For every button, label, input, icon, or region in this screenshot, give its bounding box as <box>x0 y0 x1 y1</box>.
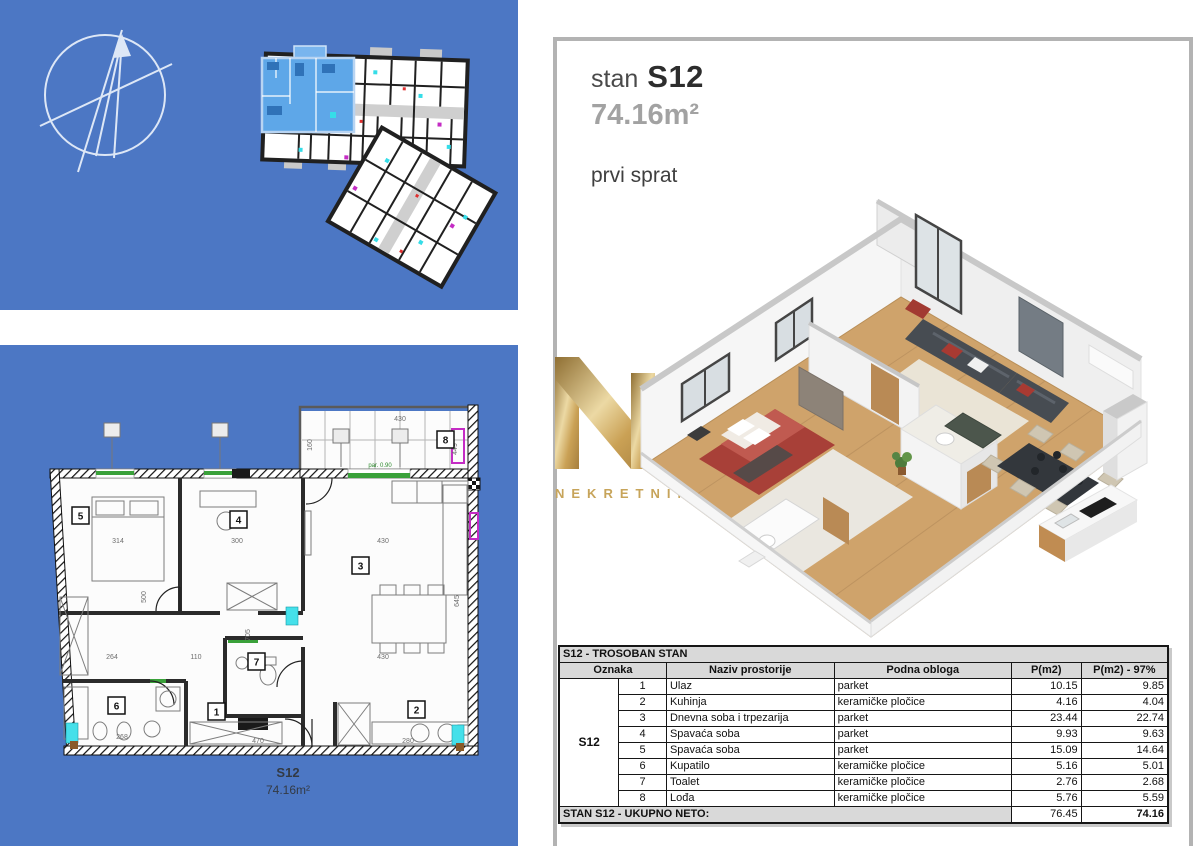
table-row: 4 Spavaća soba parket 9.93 9.63 <box>559 727 1168 743</box>
plan-interior <box>59 411 468 746</box>
cell-area97: 9.63 <box>1081 727 1168 743</box>
cell-area97: 22.74 <box>1081 711 1168 727</box>
cell-area: 2.76 <box>1011 775 1081 791</box>
footer-total: 76.45 <box>1011 807 1081 824</box>
detail-panel: stan S12 74.16m² prvi sprat NEKRETNINE <box>553 37 1193 846</box>
cell-num: 8 <box>619 791 667 807</box>
col-oznaka: Oznaka <box>559 663 666 679</box>
cell-area: 23.44 <box>1011 711 1081 727</box>
col-pm2: P(m2) <box>1011 663 1081 679</box>
cell-area97: 14.64 <box>1081 743 1168 759</box>
plan-caption-area: 74.16m² <box>266 783 310 797</box>
cell-num: 2 <box>619 695 667 711</box>
dimension-label: 300 <box>231 538 243 545</box>
dimension-label: 705 <box>245 629 252 641</box>
dimension-label: 264 <box>106 654 118 661</box>
cell-area97: 2.68 <box>1081 775 1168 791</box>
room-label: 8 <box>443 436 449 447</box>
unit-area: 74.16m² <box>591 99 704 132</box>
cell-name: Spavaća soba <box>666 743 834 759</box>
plan-caption-code: S12 <box>276 765 299 780</box>
room-label: 6 <box>114 702 120 713</box>
dimension-label: 110 <box>190 654 201 661</box>
dimension-label: 430 <box>377 538 389 545</box>
compass-icon <box>40 30 172 172</box>
cell-floor: parket <box>834 743 1011 759</box>
building-footprint <box>260 43 498 289</box>
site-plan-panel <box>0 0 518 310</box>
cell-name: Toalet <box>666 775 834 791</box>
dimension-label: 470 <box>252 738 264 745</box>
cell-floor: parket <box>834 711 1011 727</box>
room-label: 3 <box>358 562 364 573</box>
dimension-label: 268 <box>116 734 128 741</box>
page: 314 300 430 264 110 580 430 268 470 280 … <box>0 0 1200 846</box>
cell-area97: 5.59 <box>1081 791 1168 807</box>
dimension-label: 430 <box>377 654 389 661</box>
cell-area: 4.16 <box>1011 695 1081 711</box>
cell-name: Dnevna soba i trpezarija <box>666 711 834 727</box>
dimension-label: 500 <box>141 591 148 603</box>
table-row: 8 Lođa keramičke pločice 5.76 5.59 <box>559 791 1168 807</box>
room-label: 7 <box>254 658 260 669</box>
table-header-row: Oznaka Naziv prostorije Podna obloga P(m… <box>559 663 1168 679</box>
table-footer-row: STAN S12 - UKUPNO NETO: 76.45 74.16 <box>559 807 1168 824</box>
dimension-label: 645 <box>454 595 461 607</box>
footer-label: STAN S12 - UKUPNO NETO: <box>559 807 1011 824</box>
apartment-3d-render <box>565 167 1177 647</box>
cell-area97: 4.04 <box>1081 695 1168 711</box>
unit-title-prefix: stan <box>591 65 638 94</box>
parapet-label: par. 0.90 <box>368 463 392 469</box>
cell-num: 6 <box>619 759 667 775</box>
dimension-label: 314 <box>112 538 124 545</box>
cell-num: 3 <box>619 711 667 727</box>
cell-floor: keramičke pločice <box>834 695 1011 711</box>
cell-floor: keramičke pločice <box>834 791 1011 807</box>
cell-area: 15.09 <box>1011 743 1081 759</box>
cell-area97: 5.01 <box>1081 759 1168 775</box>
rooms-table: S12 - TROSOBAN STAN Oznaka Naziv prostor… <box>558 645 1169 824</box>
room-label: 1 <box>214 708 220 719</box>
cell-floor: keramičke pločice <box>834 775 1011 791</box>
group-label: S12 <box>559 679 619 807</box>
room-label: 2 <box>414 706 420 717</box>
table-row: 7 Toalet keramičke pločice 2.76 2.68 <box>559 775 1168 791</box>
cell-num: 1 <box>619 679 667 695</box>
table-row: 6 Kupatilo keramičke pločice 5.16 5.01 <box>559 759 1168 775</box>
cell-name: Kuhinja <box>666 695 834 711</box>
cell-num: 7 <box>619 775 667 791</box>
cell-name: Spavaća soba <box>666 727 834 743</box>
table-row: 3 Dnevna soba i trpezarija parket 23.44 … <box>559 711 1168 727</box>
table-title-row: S12 - TROSOBAN STAN <box>559 646 1168 663</box>
floor-plan-drawing: 314 300 430 264 110 580 430 268 470 280 … <box>0 345 518 846</box>
cell-area: 5.16 <box>1011 759 1081 775</box>
dimension-label: 160 <box>307 439 314 451</box>
unit-title-code: S12 <box>647 59 704 95</box>
cell-name: Lođa <box>666 791 834 807</box>
table-row: S12 1 Ulaz parket 10.15 9.85 <box>559 679 1168 695</box>
cell-floor: parket <box>834 679 1011 695</box>
floor-plan-panel: 314 300 430 264 110 580 430 268 470 280 … <box>0 345 518 846</box>
cell-area: 5.76 <box>1011 791 1081 807</box>
col-naziv: Naziv prostorije <box>666 663 834 679</box>
room-label: 4 <box>236 516 242 527</box>
table-row: 2 Kuhinja keramičke pločice 4.16 4.04 <box>559 695 1168 711</box>
cell-floor: parket <box>834 727 1011 743</box>
table-row: 5 Spavaća soba parket 15.09 14.64 <box>559 743 1168 759</box>
footer-total-97: 74.16 <box>1081 807 1168 824</box>
room-label: 5 <box>78 512 84 523</box>
cell-area: 10.15 <box>1011 679 1081 695</box>
cell-name: Ulaz <box>666 679 834 695</box>
cell-num: 4 <box>619 727 667 743</box>
highlighted-unit-s12 <box>262 46 354 132</box>
dimension-label: 280 <box>402 738 414 745</box>
cell-area97: 9.85 <box>1081 679 1168 695</box>
table-title: S12 - TROSOBAN STAN <box>559 646 1168 663</box>
cell-num: 5 <box>619 743 667 759</box>
cell-area: 9.93 <box>1011 727 1081 743</box>
dimension-label: 430 <box>394 416 406 423</box>
col-podna: Podna obloga <box>834 663 1011 679</box>
cell-floor: keramičke pločice <box>834 759 1011 775</box>
site-plan-drawing <box>0 0 518 310</box>
cell-name: Kupatilo <box>666 759 834 775</box>
col-pm2-97: P(m2) - 97% <box>1081 663 1168 679</box>
